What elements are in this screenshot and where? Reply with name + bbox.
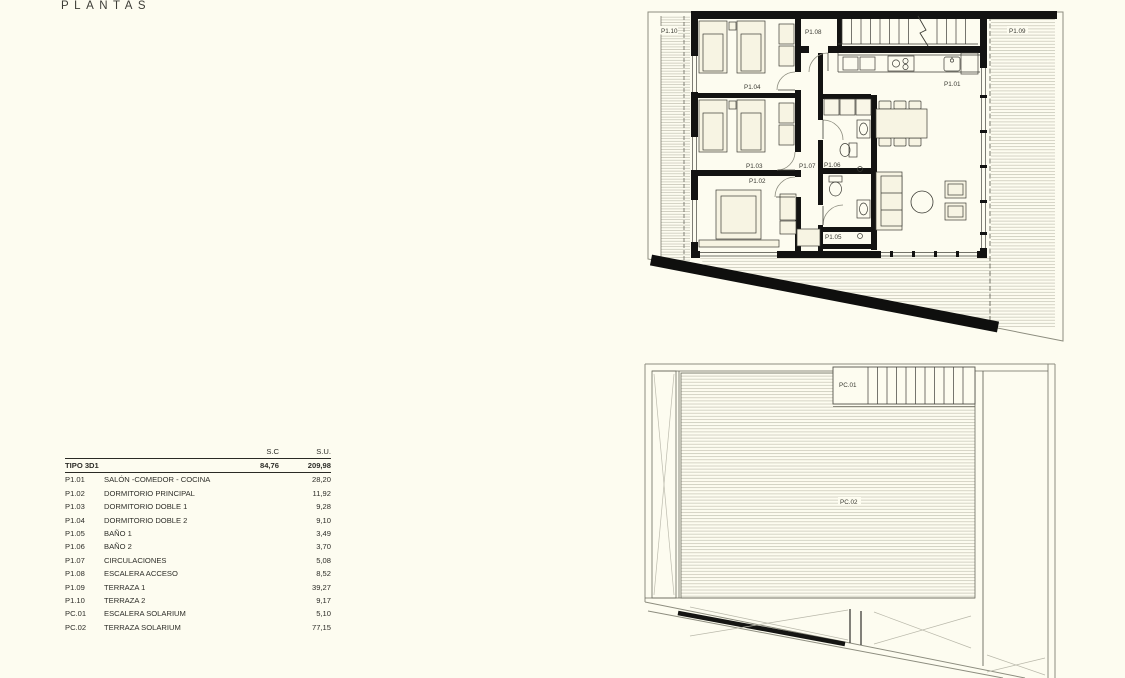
bath2-fixtures [840,120,870,157]
sofa [876,172,902,230]
stair-landing [961,53,978,74]
label-pc01: PC.01 [839,382,857,389]
label-p104: P1.04 [744,84,761,91]
dining-set [876,101,927,146]
floor-plans-drawing: P1.10 P1.08 P1.09 P1.01 P1.04 P1.03 P1.0… [0,0,1125,678]
label-p109: P1.09 [1009,28,1026,35]
closet-row [824,99,871,115]
column-marker-2 [858,234,863,239]
label-p105: P1.05 [825,234,842,241]
bedroom-doble2-furniture [699,21,794,73]
armchairs [945,181,966,220]
bedroom-doble1-furniture [699,100,794,152]
plan-first-floor: P1.10 P1.08 P1.09 P1.01 P1.04 P1.03 P1.0… [648,11,1063,341]
kitchen-counter [838,53,980,72]
terraza1-deck [991,16,1055,327]
label-p101: P1.01 [944,81,961,88]
plan-solarium: PC.01 PC.02 [645,364,1055,678]
plan2-bottom-band [678,607,1045,675]
round-table [911,191,933,213]
label-p107: P1.07 [799,163,816,170]
label-p103: P1.03 [746,163,763,170]
terraza2-deck [661,16,690,266]
label-p108: P1.08 [805,29,822,36]
bath1-fixtures [829,176,870,218]
bedroom-principal-furniture [699,190,820,247]
label-p110: P1.10 [661,28,678,35]
skylight-strip [652,371,679,598]
label-p106: P1.06 [824,162,841,169]
label-p102: P1.02 [749,178,766,185]
label-pc02: PC.02 [840,499,858,506]
access-stairs [838,16,978,46]
